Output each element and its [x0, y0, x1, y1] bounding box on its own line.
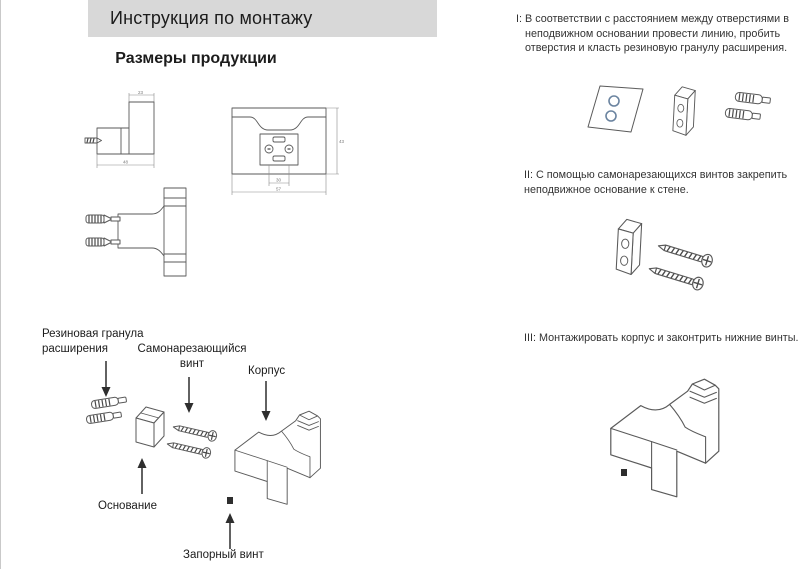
step-2-text: II: С помощью самонарезающихся винтов за… — [524, 168, 800, 197]
dimension-label: 30 — [276, 178, 282, 183]
step-3-text: III: Монтажировать корпус и законтрить н… — [524, 331, 800, 346]
hook-body-icon — [231, 396, 331, 510]
arrow-up-icon — [224, 511, 236, 549]
page-title: Инструкция по монтажу — [110, 8, 313, 29]
lock-screw-icon — [621, 469, 627, 476]
page-edge-line — [0, 0, 1, 569]
base-part-icon — [132, 402, 170, 450]
arrow-up-icon — [136, 456, 148, 494]
assembled-hook-icon — [606, 360, 732, 504]
section-title-dimensions: Размеры продукции — [96, 50, 296, 68]
dimension-label: 43 — [339, 139, 345, 144]
arrow-down-icon — [183, 377, 195, 413]
page-title-bar: Инструкция по монтажу — [88, 0, 437, 37]
rubber-plugs-icon — [722, 88, 782, 128]
tapping-screws-icon — [650, 238, 726, 302]
wall-marking-icon — [586, 83, 646, 133]
dimension-label: 23 — [138, 90, 144, 95]
base-plate-icon — [612, 214, 648, 282]
top-view-drawing — [84, 182, 209, 317]
label-lock-screw: Запорный винт — [183, 548, 283, 563]
dimension-label: 57 — [276, 187, 282, 192]
screw-icon — [85, 138, 102, 143]
front-view-drawing: 30 57 43 — [226, 94, 348, 199]
anchor-and-screw-icon — [86, 238, 120, 246]
side-view-drawing: 23 48 — [84, 90, 204, 178]
step-1-text: I: В соответствии с расстоянием между от… — [516, 12, 800, 56]
anchor-and-screw-icon — [86, 215, 120, 223]
tapping-screws-icon — [168, 420, 230, 464]
arrow-down-icon — [100, 361, 112, 397]
label-tapping-screw: Самонарезающийся винт — [133, 342, 251, 372]
label-base: Основание — [98, 499, 178, 514]
label-body: Корпус — [248, 364, 308, 379]
dimension-label: 48 — [123, 160, 129, 165]
rubber-plugs-icon — [85, 397, 133, 433]
lock-screw-icon — [227, 497, 233, 504]
base-plate-icon — [668, 84, 702, 140]
